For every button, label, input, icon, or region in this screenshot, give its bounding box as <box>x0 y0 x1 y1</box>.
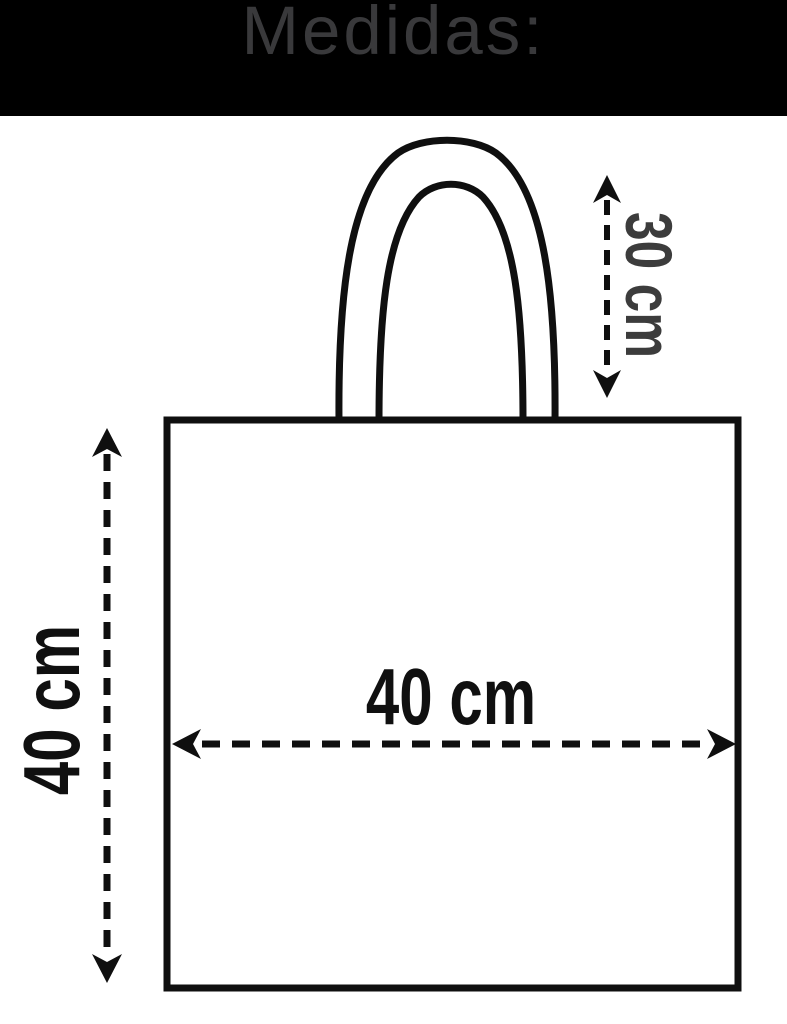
arrowhead-down-icon <box>593 370 621 398</box>
arrowhead-down-icon <box>92 954 122 983</box>
bag-handle-outline <box>339 140 555 422</box>
bag-height-label: 40 cm <box>12 625 92 795</box>
bag-height-dimension-arrow <box>92 428 122 983</box>
measurement-diagram-page: Medidas: 40 cm 40 cm 30 cm <box>0 0 787 1024</box>
arrowhead-up-icon <box>593 175 621 203</box>
bag-width-label: 40 cm <box>366 657 536 737</box>
tote-bag-diagram <box>0 0 787 1024</box>
arrowhead-up-icon <box>92 428 122 457</box>
bag-handle-inner-arc <box>379 184 523 422</box>
handle-height-label: 30 cm <box>616 212 682 358</box>
